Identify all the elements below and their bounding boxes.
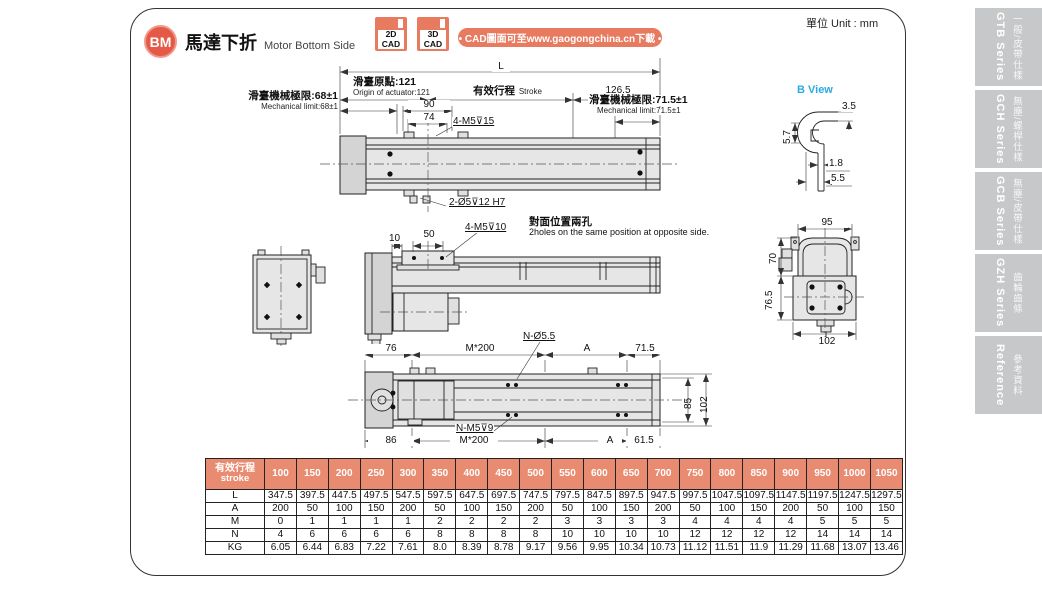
table-cell: 12 <box>743 529 775 542</box>
cad-3d-line2: CAD <box>424 40 442 49</box>
mech-limit-left-en: Mechanical limit:68±1 <box>195 103 338 111</box>
table-cell: 1097.5 <box>743 490 775 503</box>
table-cell: 200 <box>647 503 679 516</box>
table-cell: 13.07 <box>839 542 871 555</box>
table-cell: 1297.5 <box>870 490 902 503</box>
tap-4m5-10-label: 4-M5⊽10 <box>464 223 507 233</box>
table-row-label: L <box>206 490 265 503</box>
table-cell: 8.78 <box>488 542 520 555</box>
table-cell: 12 <box>679 529 711 542</box>
table-col-header: 800 <box>711 459 743 490</box>
table-row-a: A200501001502005010015020050100150200501… <box>206 503 903 516</box>
cad-download-banner[interactable]: • CAD圖面可至www.gaogongchina.cn下載 • <box>458 28 662 47</box>
sidebar-tab-series: GZH Series <box>994 258 1006 327</box>
page-title-cn: 馬達下折 <box>185 29 257 55</box>
table-cell: 10 <box>615 529 647 542</box>
table-cell: 150 <box>360 503 392 516</box>
table-cell: 4 <box>743 516 775 529</box>
table-cell: 14 <box>807 529 839 542</box>
table-cell: 8 <box>456 529 488 542</box>
table-cell: 497.5 <box>360 490 392 503</box>
dim-m200-top: M*200 <box>456 344 504 354</box>
table-cell: 8.0 <box>424 542 456 555</box>
table-cell: 10 <box>552 529 584 542</box>
dim-85: 85 <box>684 398 694 409</box>
cad-2d-label: 2D CAD <box>378 30 404 49</box>
table-cell: 100 <box>711 503 743 516</box>
table-cell: 4 <box>711 516 743 529</box>
table-cell: 200 <box>265 503 297 516</box>
table-cell: 6 <box>328 529 360 542</box>
table-cell: 6.05 <box>265 542 297 555</box>
dim-50: 50 <box>410 230 448 240</box>
origin-label-cn: 滑臺原點:121 <box>352 77 417 88</box>
table-col-header: 850 <box>743 459 775 490</box>
dim-76-5: 76.5 <box>765 291 775 310</box>
table-col-header: 650 <box>615 459 647 490</box>
sidebar-tab-series: GCH Series <box>994 94 1006 165</box>
table-cell: 50 <box>552 503 584 516</box>
table-row-l: L347.5397.5447.5497.5547.5597.5647.5697.… <box>206 490 903 503</box>
page-title: 馬達下折 Motor Bottom Side <box>185 29 355 55</box>
table-col-header: 700 <box>647 459 679 490</box>
dim-m200-bottom: M*200 <box>450 436 498 446</box>
table-cell: 6.83 <box>328 542 360 555</box>
stroke-label-en: Stroke <box>519 87 542 96</box>
table-col-header: 1050 <box>870 459 902 490</box>
tap-4m5-15-label: 4-M5⊽15 <box>452 117 495 127</box>
table-cell: 8 <box>520 529 552 542</box>
table-row-label: KG <box>206 542 265 555</box>
table-cell: 1147.5 <box>775 490 807 503</box>
table-row-label: A <box>206 503 265 516</box>
table-col-header: 900 <box>775 459 807 490</box>
table-cell: 10 <box>583 529 615 542</box>
table-cell: 4 <box>265 529 297 542</box>
table-cell: 12 <box>775 529 807 542</box>
table-cell: 150 <box>870 503 902 516</box>
table-cell: 14 <box>839 529 871 542</box>
table-col-header: 250 <box>360 459 392 490</box>
table-col-header: 100 <box>265 459 297 490</box>
table-cell: 8 <box>488 529 520 542</box>
stroke-label-cn: 有效行程 <box>472 85 516 97</box>
table-cell: 9.17 <box>520 542 552 555</box>
table-cell: 150 <box>488 503 520 516</box>
spec-table-wrap: 有效行程stroke100150200250300350400450500550… <box>205 458 903 555</box>
cad-3d-label: 3D CAD <box>420 30 446 49</box>
table-col-header: 300 <box>392 459 424 490</box>
sidebar-tab-label: 齒輪齒條 <box>1009 272 1023 314</box>
table-cell: 100 <box>328 503 360 516</box>
tap-n-m5-9-label: N-M5⊽9 <box>455 424 494 434</box>
mech-limit-right-cn: 滑臺機械極限:71.5±1 <box>588 95 689 106</box>
table-cell: 547.5 <box>392 490 424 503</box>
table-cell: 747.5 <box>520 490 552 503</box>
dim-74: 74 <box>408 113 450 123</box>
table-cell: 1 <box>328 516 360 529</box>
table-cell: 1 <box>392 516 424 529</box>
table-cell: 847.5 <box>583 490 615 503</box>
table-cell: 597.5 <box>424 490 456 503</box>
cad-2d-download-icon[interactable]: 2D CAD <box>375 17 407 51</box>
stroke-label: 有效行程 Stroke <box>448 86 566 97</box>
sidebar-tab-label: 參考資料 <box>1009 354 1023 396</box>
table-col-header: 150 <box>296 459 328 490</box>
table-cell: 11.68 <box>807 542 839 555</box>
table-cell: 8 <box>424 529 456 542</box>
page-title-en: Motor Bottom Side <box>264 40 355 52</box>
table-cell: 3 <box>552 516 584 529</box>
hole-n-o55-label: N-Ø5.5 <box>522 332 556 342</box>
table-cell: 2 <box>520 516 552 529</box>
table-row-label: M <box>206 516 265 529</box>
table-cell: 1 <box>296 516 328 529</box>
table-cell: 100 <box>456 503 488 516</box>
table-cell: 10.73 <box>647 542 679 555</box>
table-cell: 7.22 <box>360 542 392 555</box>
dim-90: 90 <box>408 100 450 110</box>
table-col-header: 750 <box>679 459 711 490</box>
table-row-m: M01111222233334444555 <box>206 516 903 529</box>
dim-5-7: 5.7 <box>783 130 793 144</box>
table-cell: 4 <box>679 516 711 529</box>
dim-5-5: 5.5 <box>830 174 846 184</box>
opposite-holes-en: 2holes on the same position at opposite … <box>528 228 710 237</box>
table-cell: 13.46 <box>870 542 902 555</box>
dim-10: 10 <box>388 234 401 244</box>
cad-2d-line2: CAD <box>382 40 400 49</box>
table-col-header: 350 <box>424 459 456 490</box>
dim-a-bottom: A <box>598 436 622 446</box>
dim-overall-length: L <box>492 62 510 72</box>
dim-95: 95 <box>806 218 848 228</box>
table-header-stroke: 有效行程stroke <box>206 459 265 490</box>
mech-limit-right-en: Mechanical limit:71.5±1 <box>596 107 682 115</box>
table-cell: 947.5 <box>647 490 679 503</box>
table-cell: 6 <box>360 529 392 542</box>
sidebar-tab-series: GTB Series <box>994 12 1006 81</box>
table-cell: 3 <box>647 516 679 529</box>
table-cell: 150 <box>615 503 647 516</box>
sidebar-tab-series: GCB Series <box>994 176 1006 247</box>
table-cell: 200 <box>775 503 807 516</box>
table-cell: 997.5 <box>679 490 711 503</box>
table-cell: 347.5 <box>265 490 297 503</box>
origin-label-en: Origin of actuator:121 <box>352 89 431 97</box>
table-cell: 100 <box>583 503 615 516</box>
table-cell: 5 <box>870 516 902 529</box>
table-cell: 2 <box>424 516 456 529</box>
table-cell: 5 <box>807 516 839 529</box>
b-view-title: B View <box>797 85 833 96</box>
dim-1-8: 1.8 <box>828 159 844 169</box>
sidebar: GTB Series一般/皮帶仕樣GCH Series無塵/螺桿仕樣GCB Se… <box>975 0 1042 607</box>
sidebar-tab-reference[interactable]: Reference參考資料 <box>975 336 1042 414</box>
dim-76: 76 <box>368 344 414 354</box>
table-cell: 6 <box>392 529 424 542</box>
table-cell: 397.5 <box>296 490 328 503</box>
table-cell: 12 <box>711 529 743 542</box>
opposite-holes-cn: 對面位置兩孔 <box>528 217 593 228</box>
hole-2o5-label: 2-Ø5⊽12 H7 <box>448 198 506 208</box>
mech-limit-left-cn: 滑臺機械極限:68±1 <box>195 91 338 102</box>
table-cell: 4 <box>775 516 807 529</box>
table-cell: 200 <box>392 503 424 516</box>
table-cell: 6 <box>296 529 328 542</box>
dim-102-bottom: 102 <box>804 337 850 347</box>
table-cell: 11.12 <box>679 542 711 555</box>
table-cell: 3 <box>615 516 647 529</box>
table-row-kg: KG6.056.446.837.227.618.08.398.789.179.5… <box>206 542 903 555</box>
table-cell: 6.44 <box>296 542 328 555</box>
table-cell: 50 <box>424 503 456 516</box>
table-cell: 697.5 <box>488 490 520 503</box>
table-cell: 8.39 <box>456 542 488 555</box>
table-col-header: 950 <box>807 459 839 490</box>
table-cell: 797.5 <box>552 490 584 503</box>
table-cell: 14 <box>870 529 902 542</box>
dim-61-5: 61.5 <box>626 436 662 446</box>
sidebar-tab-gzh[interactable]: GZH Series齒輪齒條 <box>975 254 1042 332</box>
sidebar-tab-label: 無塵/螺桿仕樣 <box>1009 96 1023 163</box>
table-cell: 3 <box>583 516 615 529</box>
series-badge: BM <box>144 25 177 58</box>
floppy-disk-slot <box>440 19 445 28</box>
table-cell: 100 <box>839 503 871 516</box>
table-cell: 9.95 <box>583 542 615 555</box>
unit-label: 單位 Unit : mm <box>806 15 878 31</box>
dim-a-top: A <box>575 344 599 354</box>
table-cell: 50 <box>679 503 711 516</box>
table-cell: 50 <box>296 503 328 516</box>
table-cell: 11.51 <box>711 542 743 555</box>
sidebar-tab-label: 無塵/皮帶仕樣 <box>1009 178 1023 245</box>
table-cell: 1 <box>360 516 392 529</box>
table-col-header: 200 <box>328 459 360 490</box>
table-cell: 1047.5 <box>711 490 743 503</box>
table-cell: 5 <box>839 516 871 529</box>
table-cell: 150 <box>743 503 775 516</box>
table-col-header: 600 <box>583 459 615 490</box>
table-col-header: 1000 <box>839 459 871 490</box>
table-cell: 9.56 <box>552 542 584 555</box>
sidebar-tab-gtb[interactable]: GTB Series一般/皮帶仕樣 <box>975 8 1042 86</box>
table-row-label: N <box>206 529 265 542</box>
table-cell: 0 <box>265 516 297 529</box>
dim-86: 86 <box>368 436 414 446</box>
spec-table: 有效行程stroke100150200250300350400450500550… <box>205 458 903 555</box>
cad-3d-download-icon[interactable]: 3D CAD <box>417 17 449 51</box>
floppy-disk-slot <box>398 19 403 28</box>
table-cell: 647.5 <box>456 490 488 503</box>
table-cell: 10 <box>647 529 679 542</box>
table-row-n: N4666688881010101012121212141414 <box>206 529 903 542</box>
table-col-header: 450 <box>488 459 520 490</box>
table-cell: 200 <box>520 503 552 516</box>
dim-102-side: 102 <box>700 396 710 413</box>
table-cell: 50 <box>807 503 839 516</box>
table-cell: 10.34 <box>615 542 647 555</box>
table-cell: 1197.5 <box>807 490 839 503</box>
table-cell: 11.9 <box>743 542 775 555</box>
table-cell: 2 <box>488 516 520 529</box>
table-col-header: 550 <box>552 459 584 490</box>
table-cell: 7.61 <box>392 542 424 555</box>
sidebar-tab-series: Reference <box>994 344 1006 406</box>
table-cell: 447.5 <box>328 490 360 503</box>
table-cell: 2 <box>456 516 488 529</box>
table-cell: 1247.5 <box>839 490 871 503</box>
table-cell: 11.29 <box>775 542 807 555</box>
table-col-header: 500 <box>520 459 552 490</box>
sidebar-tab-gcb[interactable]: GCB Series無塵/皮帶仕樣 <box>975 172 1042 250</box>
table-col-header: 400 <box>456 459 488 490</box>
dim-71-5: 71.5 <box>627 344 663 354</box>
catalog-page: { "page": { "badge": "BM", "title_cn": "… <box>0 0 1042 607</box>
dim-3-5: 3.5 <box>841 102 857 112</box>
sidebar-tab-label: 一般/皮帶仕樣 <box>1009 14 1023 81</box>
table-cell: 897.5 <box>615 490 647 503</box>
sidebar-tab-gch[interactable]: GCH Series無塵/螺桿仕樣 <box>975 90 1042 168</box>
dim-70: 70 <box>769 253 779 264</box>
